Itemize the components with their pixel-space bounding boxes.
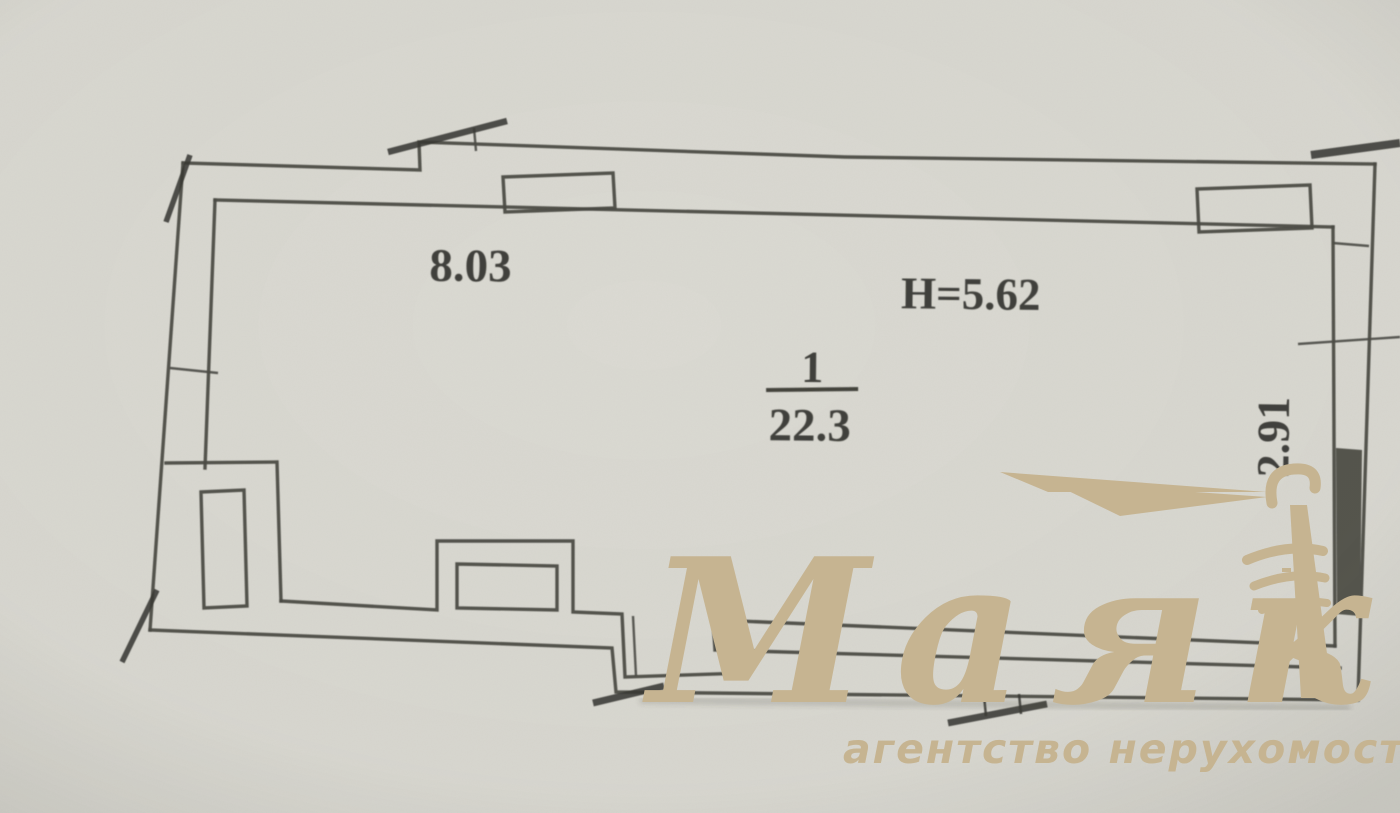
watermark: Маяк агентство нерухомості [642,469,1400,773]
scanned-floorplan-page: 8.03 H=5.62 1 22.3 2.91 Маяк агентство н… [0,0,1400,813]
floorplan-scan: 8.03 H=5.62 1 22.3 2.91 Маяк агентство н… [0,0,1400,813]
watermark-tagline: агентство нерухомості [843,725,1400,773]
watermark-brand: Маяк [642,515,1398,750]
